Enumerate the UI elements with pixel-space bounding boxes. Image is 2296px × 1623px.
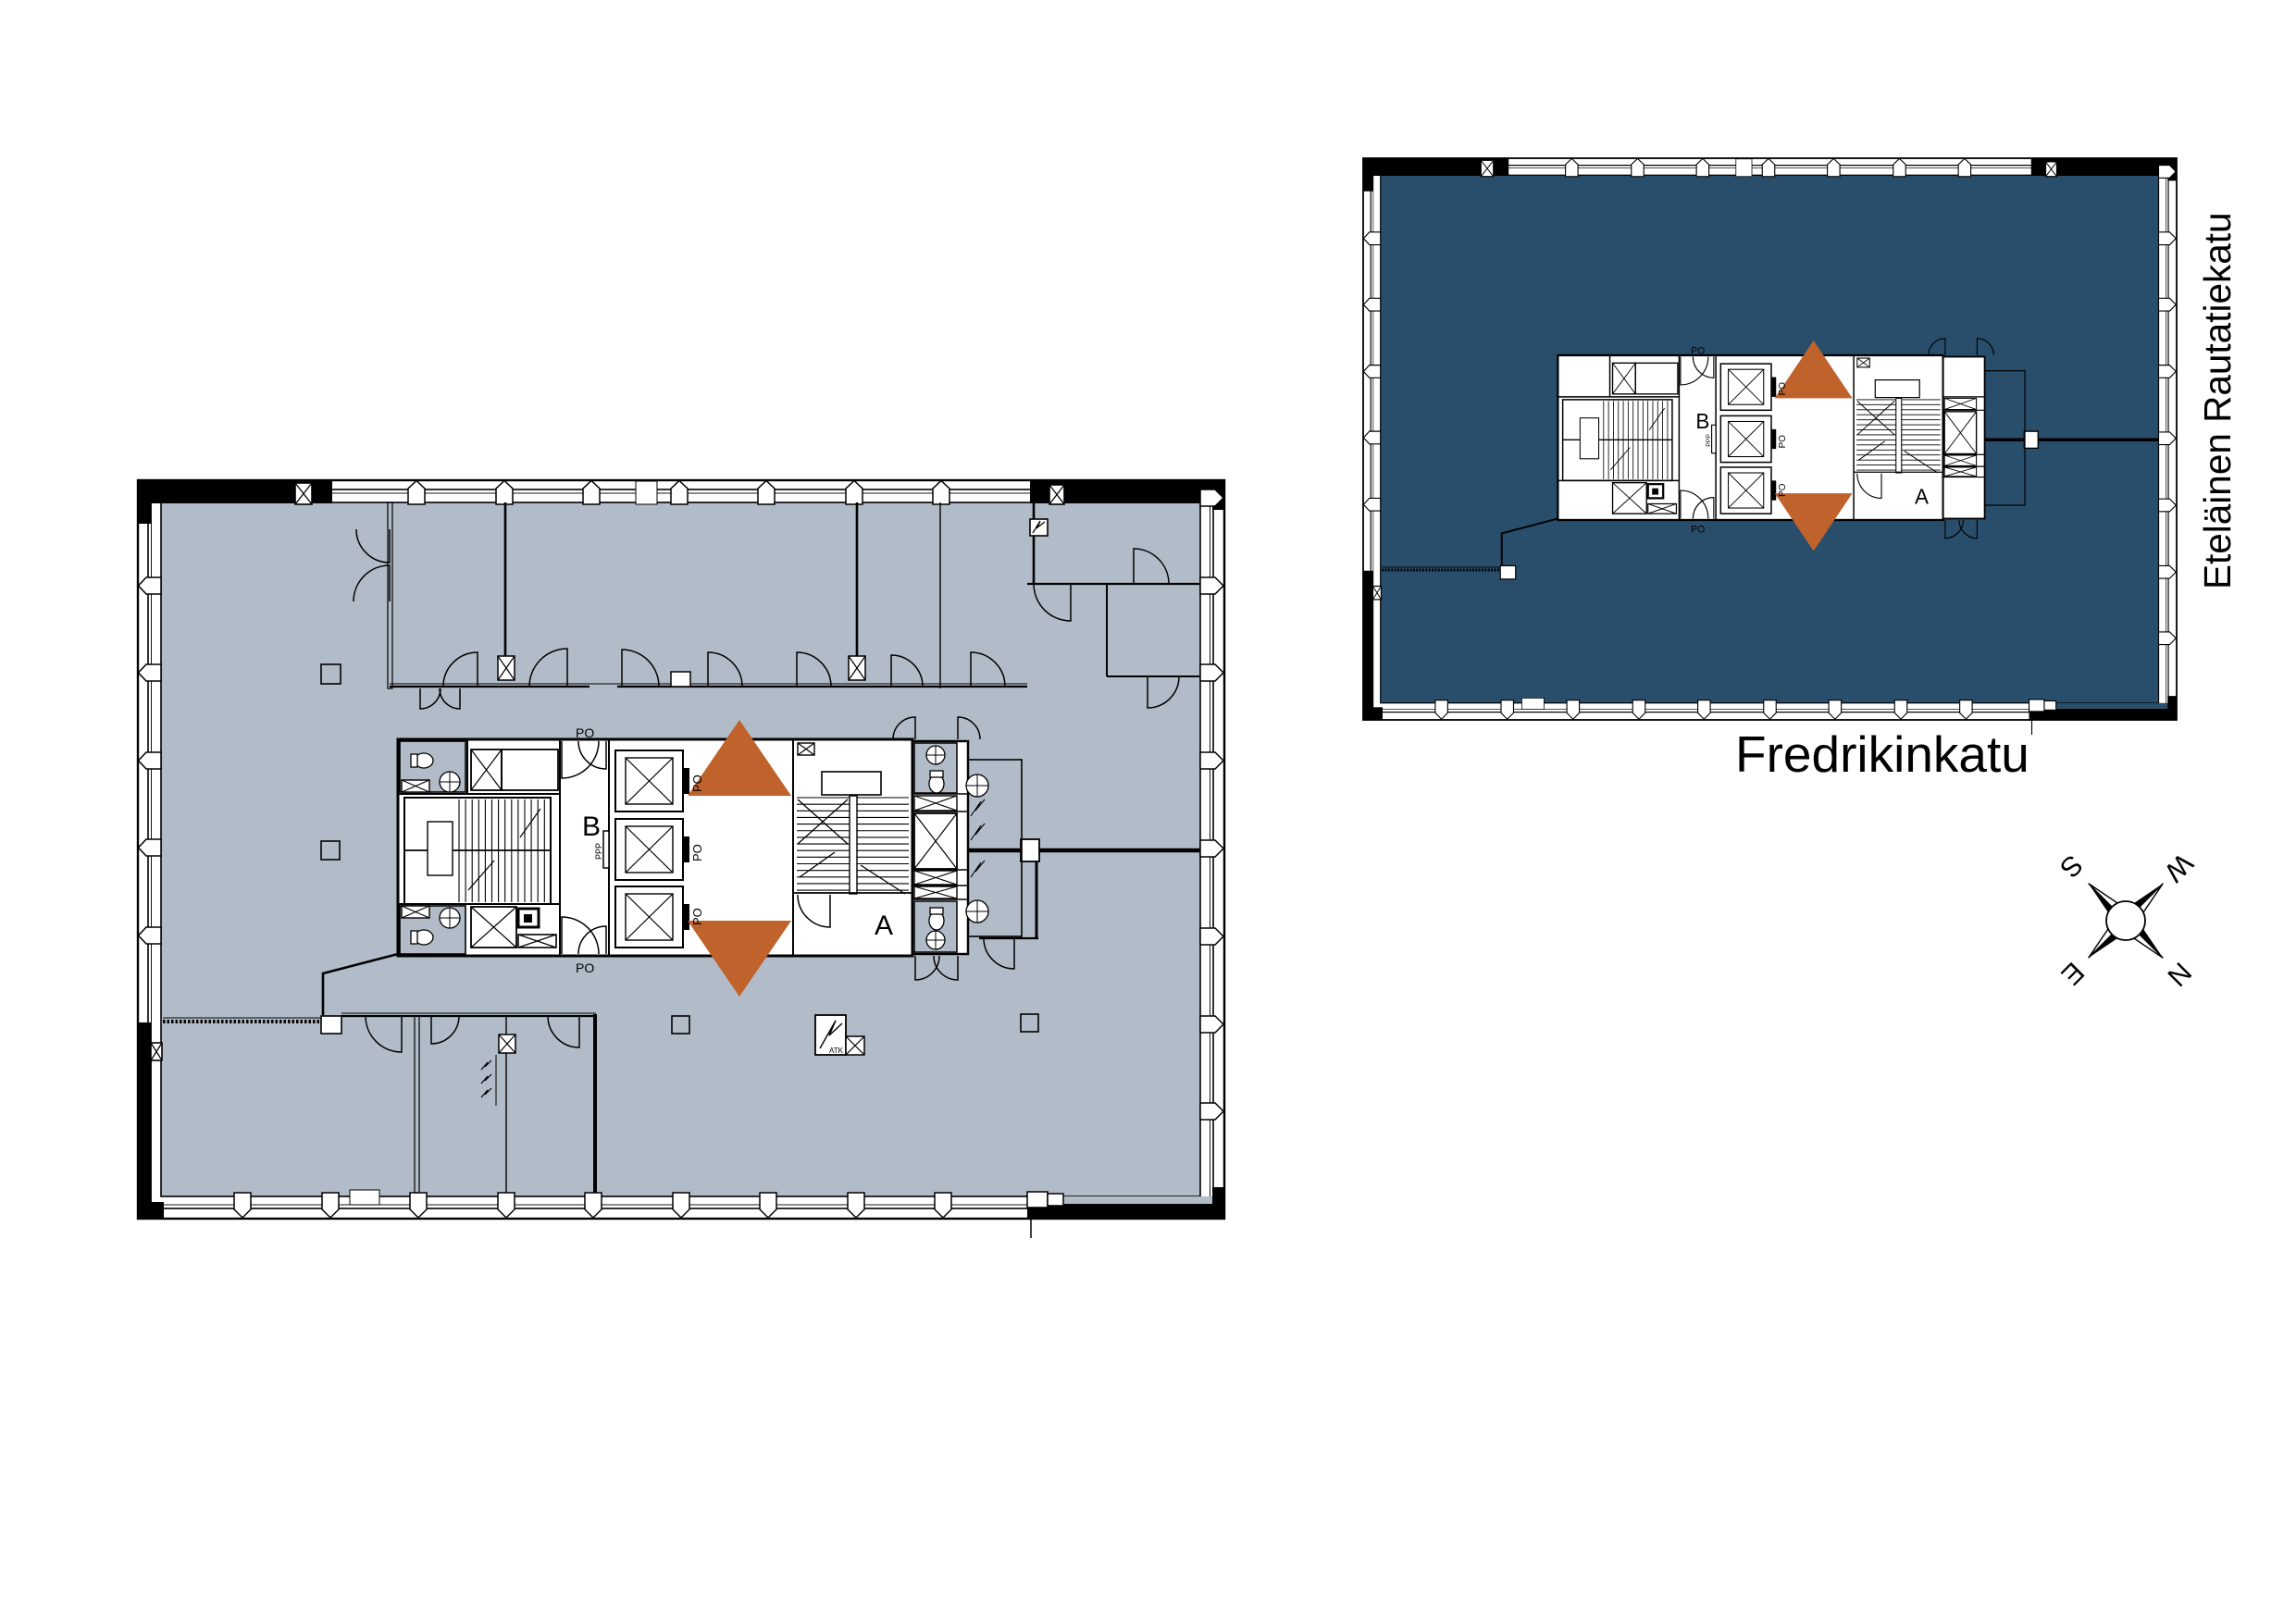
svg-text:Eteläinen Rautatiekatu: Eteläinen Rautatiekatu	[2196, 212, 2239, 589]
svg-text:ATK: ATK	[829, 1047, 844, 1055]
svg-text:E: E	[2055, 956, 2090, 990]
svg-text:W: W	[2158, 848, 2199, 888]
svg-text:N: N	[2161, 956, 2197, 992]
svg-text:Fredrikinkatu: Fredrikinkatu	[1735, 725, 2029, 783]
svg-text:S: S	[2054, 849, 2088, 883]
